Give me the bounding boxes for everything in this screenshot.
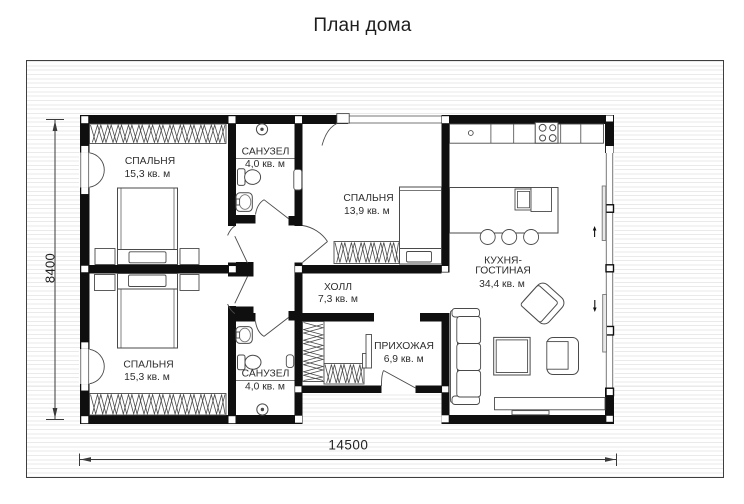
svg-text:15,3 кв. м: 15,3 кв. м — [124, 372, 170, 383]
svg-text:14500: 14500 — [328, 437, 368, 452]
svg-text:ПРИХОЖАЯ: ПРИХОЖАЯ — [374, 341, 434, 352]
svg-text:8400: 8400 — [43, 253, 58, 283]
svg-text:34,4 кв. м: 34,4 кв. м — [479, 279, 525, 290]
svg-text:6,9 кв. м: 6,9 кв. м — [384, 354, 424, 365]
svg-text:15,3 кв. м: 15,3 кв. м — [125, 169, 171, 180]
svg-text:СПАЛЬНЯ: СПАЛЬНЯ — [343, 193, 393, 204]
svg-text:САНУЗЕЛ: САНУЗЕЛ — [242, 147, 290, 158]
svg-text:13,9 кв. м: 13,9 кв. м — [344, 206, 390, 217]
svg-text:СПАЛЬНЯ: СПАЛЬНЯ — [125, 156, 175, 167]
svg-text:СПАЛЬНЯ: СПАЛЬНЯ — [123, 360, 173, 371]
svg-text:4,0 кв. м: 4,0 кв. м — [245, 382, 285, 393]
svg-text:4,0 кв. м: 4,0 кв. м — [245, 159, 285, 170]
svg-text:САНУЗЕЛ: САНУЗЕЛ — [242, 369, 290, 380]
svg-text:7,3 кв. м: 7,3 кв. м — [318, 294, 358, 305]
svg-text:ГОСТИНАЯ: ГОСТИНАЯ — [475, 266, 531, 277]
svg-text:ХОЛЛ: ХОЛЛ — [324, 282, 352, 293]
